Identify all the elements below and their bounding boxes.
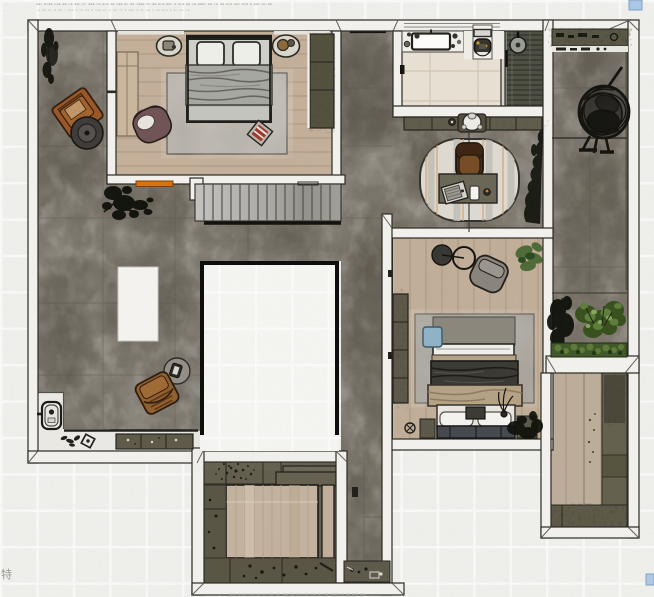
svg-text:▪▪▫ ▪▫▪▪ ▫▪▪ ▪▪ ▫▪ ▪▪▫ ▪▫ ▪▪▪: ▪▪▫ ▪▫▪▪ ▫▪▪ ▪▪ ▫▪ ▪▪▫ ▪▫ ▪▪▪ ▫▪ ▪▫▪ ▪▪ …: [230, 592, 366, 597]
svg-text:▫▪ ▪▪ ▪▫ ▪ ▪▪ ▫ ▪▪▪ ▪ ▫▪ ▪▪ ▪: ▫▪ ▪▪ ▪▫ ▪ ▪▪ ▫ ▪▪▪ ▪ ▫▪ ▪▪ ▪ ▫▪▪ ▪▫ ▪ ▪…: [36, 8, 189, 14]
svg-text:特: 特: [1, 567, 12, 581]
